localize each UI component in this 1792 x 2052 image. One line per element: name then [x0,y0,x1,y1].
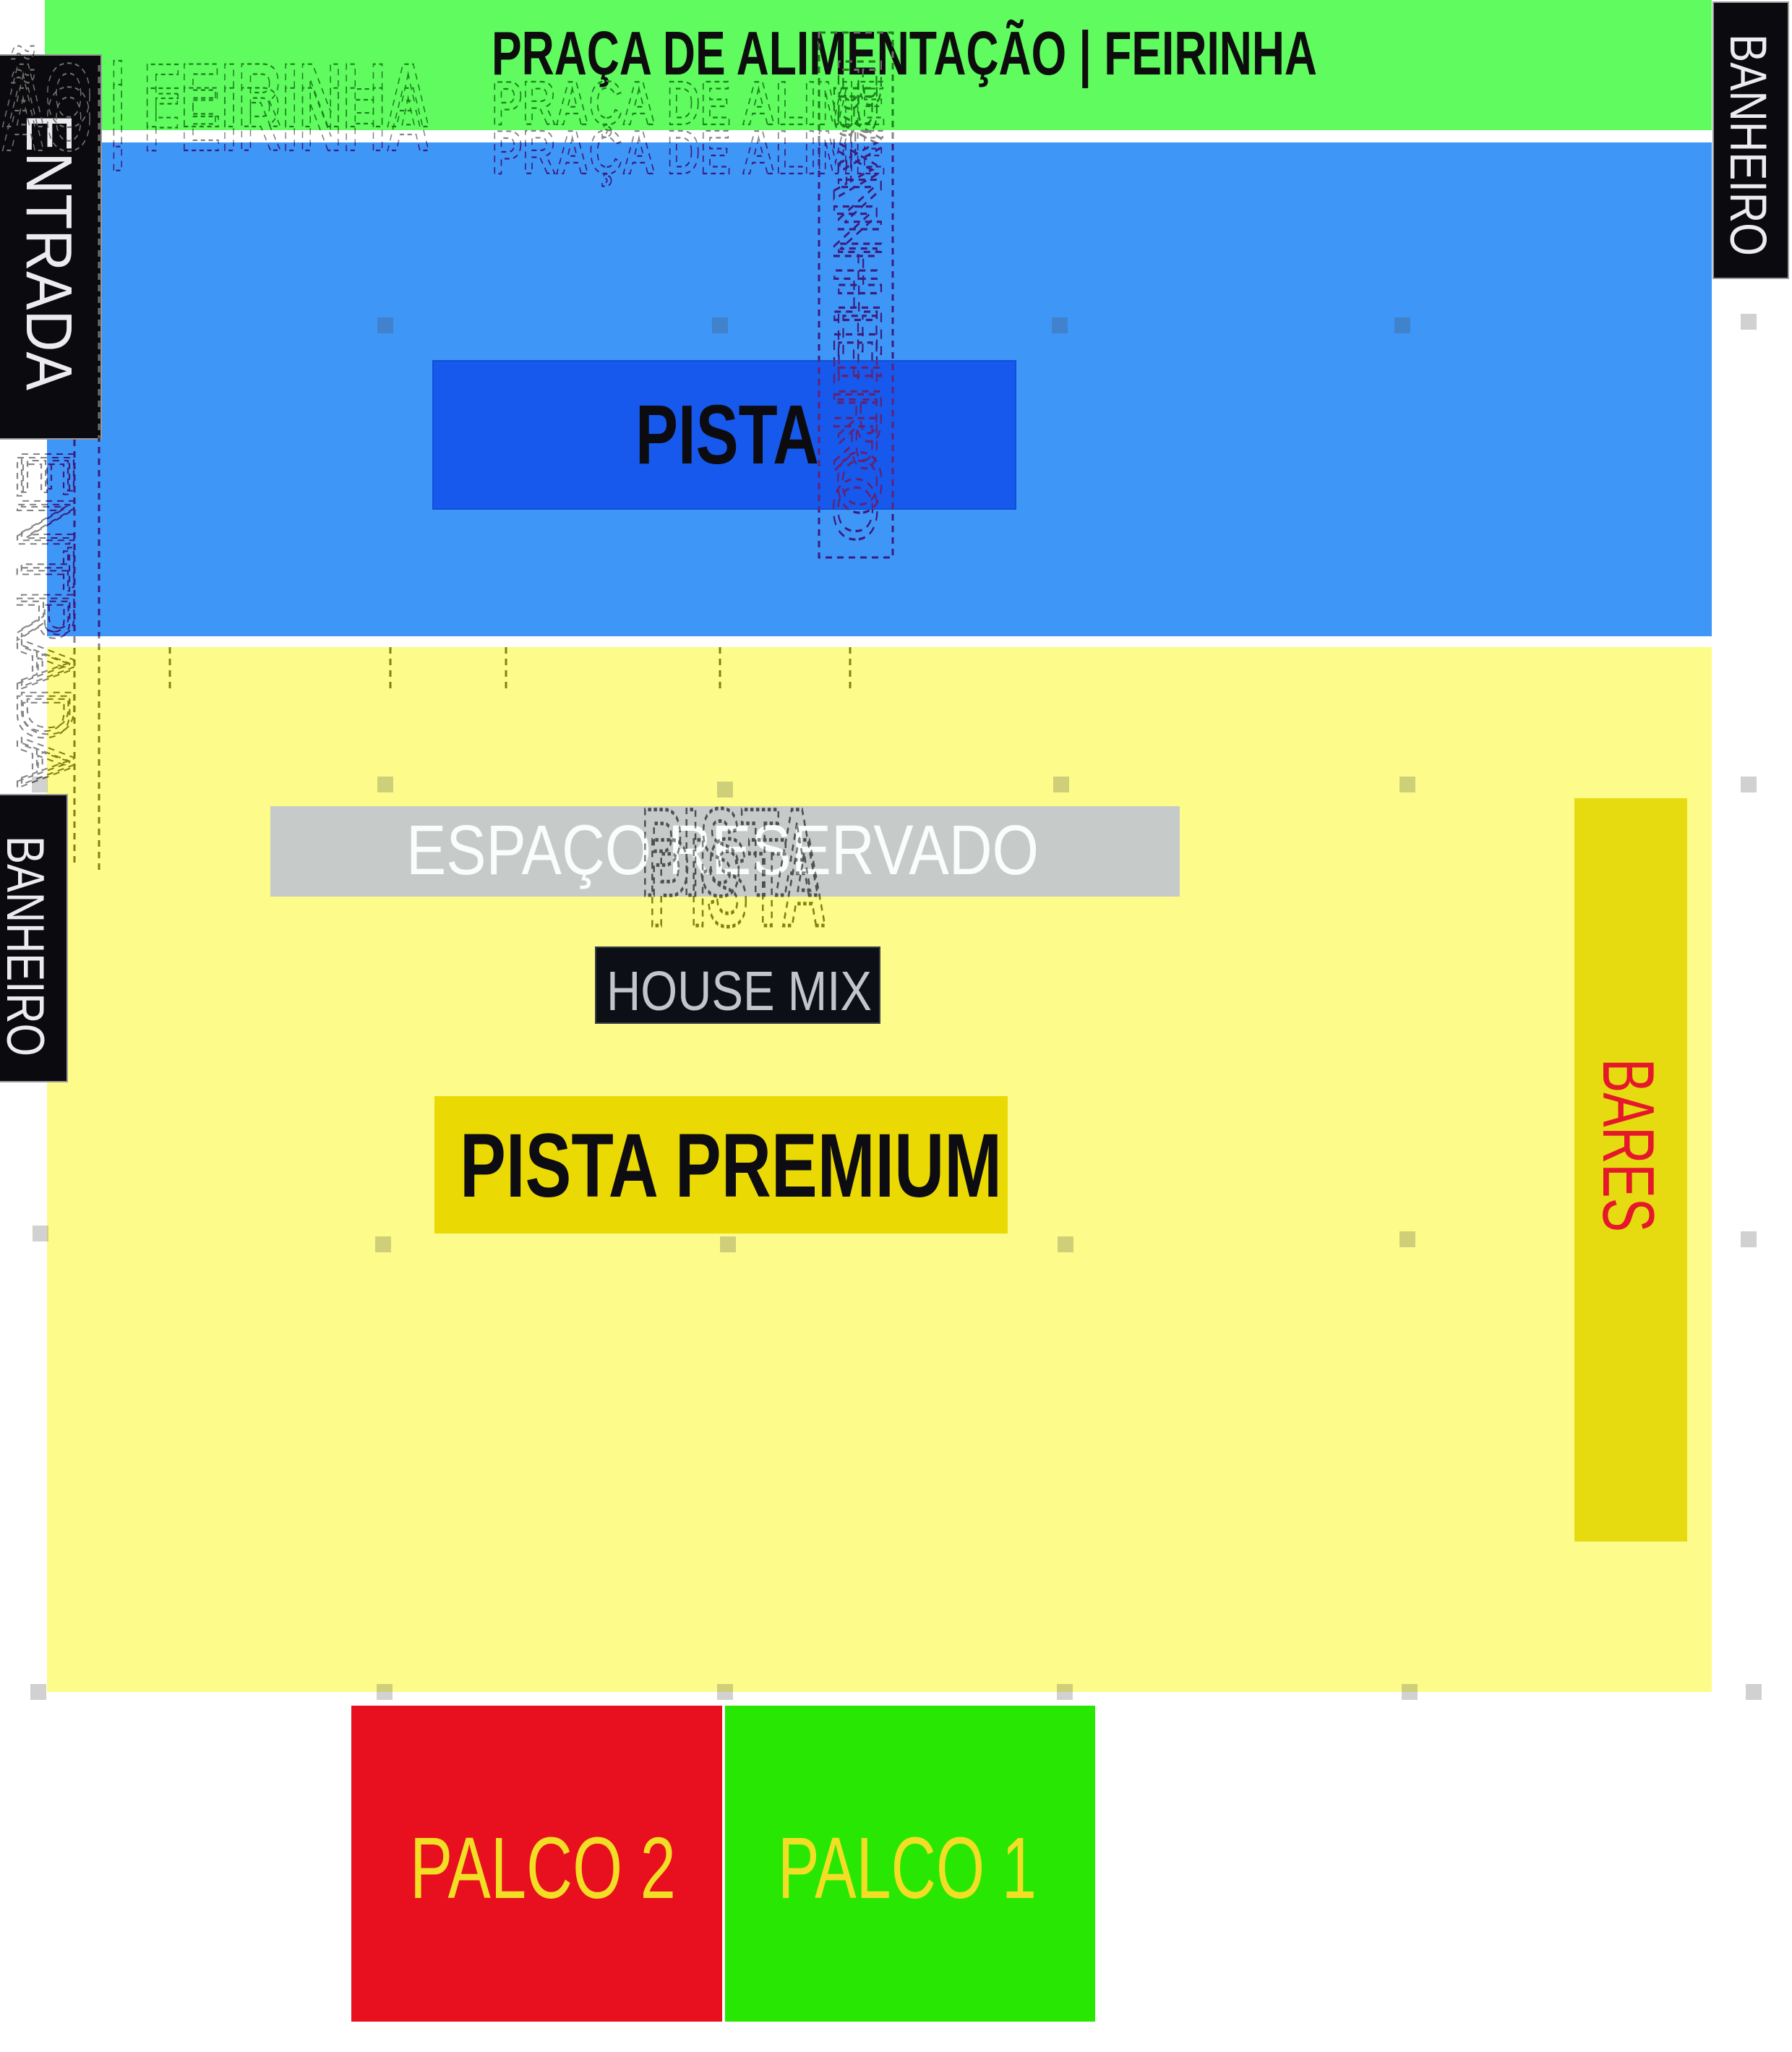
svg-text:ENTRADA: ENTRADA [1,452,85,788]
svg-text:BANHEIRO: BANHEIRO [820,81,889,544]
svg-text:TAÇÃO | FEIRINHA: TAÇÃO | FEIRINHA [0,69,430,171]
svg-text:PISTA: PISTA [648,813,827,952]
